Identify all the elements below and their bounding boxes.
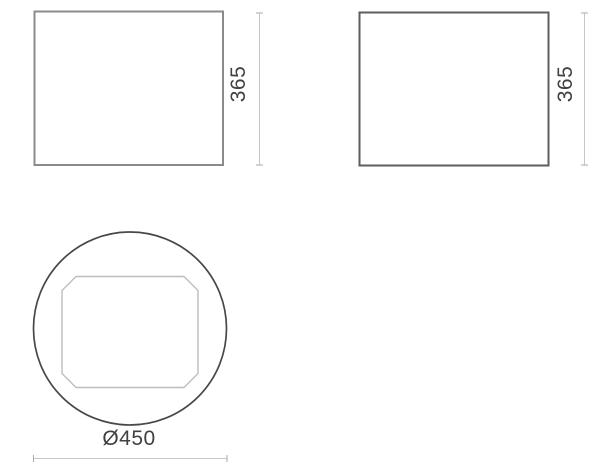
drawing-canvas [0, 0, 600, 471]
diameter-dimension-label: Ø450 [69, 428, 189, 450]
top-view-inner-panel-outline [62, 277, 198, 388]
front-height-dimension-label: 365 [228, 54, 250, 114]
front-view-outline [35, 12, 224, 166]
technical-drawing-page: 365 365 Ø450 [0, 0, 600, 471]
side-view-outline [360, 13, 549, 166]
front-height-dimension-line [256, 13, 263, 165]
diameter-dimension-line [34, 455, 228, 462]
side-height-dimension-line [581, 13, 588, 165]
side-height-dimension-label: 365 [555, 54, 577, 114]
